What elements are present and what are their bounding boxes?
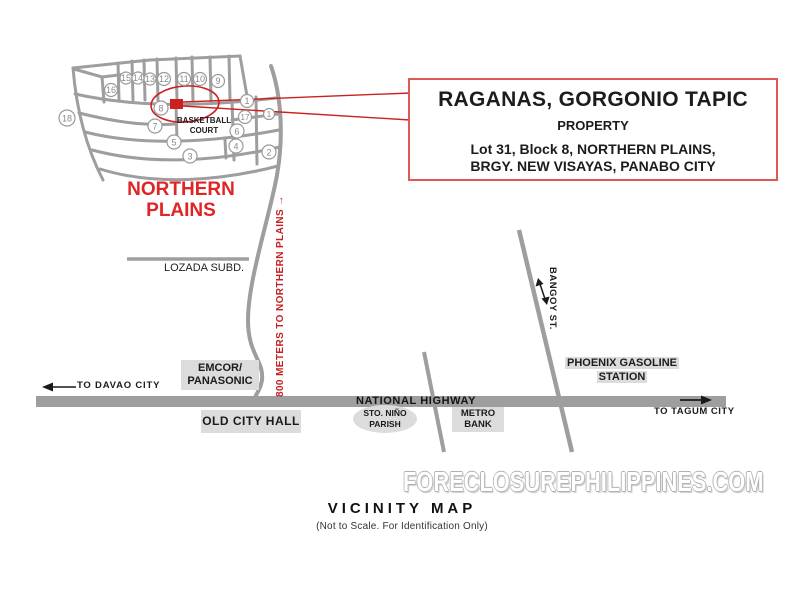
left-arrowhead-icon — [42, 383, 53, 392]
subdivision-name: NORTHERN PLAINS — [116, 180, 246, 221]
lot-circle: 13 — [144, 73, 156, 85]
old-city-hall-label: OLD CITY HALL — [201, 410, 301, 433]
to-davao-city-label: TO DAVAO CITY — [77, 380, 160, 391]
street-row-5 — [100, 166, 278, 180]
lot-circle: 5 — [167, 135, 181, 149]
lot-circle: 17 — [239, 111, 252, 124]
svg-text:1: 1 — [244, 96, 249, 106]
lot-circle: 3 — [183, 149, 197, 163]
svg-text:15: 15 — [121, 73, 131, 83]
lot-circle: 10 — [194, 73, 207, 86]
phoenix-gasoline-label: PHOENIX GASOLINE STATION — [558, 356, 686, 385]
property-label: PROPERTY — [410, 118, 776, 133]
lot-circle: 14 — [132, 72, 144, 84]
lot-circle: 1 — [241, 95, 254, 108]
lot-circle: 12 — [158, 73, 171, 86]
svg-text:16: 16 — [106, 85, 116, 95]
svg-text:4: 4 — [233, 142, 238, 152]
svg-text:17: 17 — [241, 113, 250, 122]
red-square-marker-icon — [170, 99, 183, 109]
metro-bank-label: METRO BANK — [452, 407, 504, 432]
lot-circle: 11 — [178, 73, 191, 86]
property-owner: RAGANAS, GORGONIO TAPIC — [410, 88, 776, 112]
svg-text:3: 3 — [187, 152, 192, 162]
lot-circle: 18 — [59, 110, 75, 126]
bangoy-st-label: BANGOY ST. — [547, 267, 558, 330]
property-address-line1: Lot 31, Block 8, NORTHERN PLAINS, — [410, 141, 776, 158]
lot-circle: 9 — [212, 75, 225, 88]
lozada-subd-label: LOZADA SUBD. — [164, 262, 244, 274]
lot-circle: 2 — [262, 145, 276, 159]
svg-text:12: 12 — [159, 74, 169, 84]
lot-circle: 7 — [148, 119, 162, 133]
basketball-court-label: BASKETBALL COURT — [176, 116, 232, 137]
svg-text:18: 18 — [62, 114, 72, 124]
davao-direction — [42, 383, 76, 392]
svg-text:13: 13 — [145, 74, 155, 84]
svg-text:9: 9 — [215, 76, 220, 86]
to-tagum-city-label: TO TAGUM CITY — [654, 406, 735, 417]
lot-circle: 15 — [120, 72, 132, 84]
svg-text:6: 6 — [234, 127, 239, 137]
svg-text:1: 1 — [267, 110, 272, 119]
property-callout: RAGANAS, GORGONIO TAPIC PROPERTY Lot 31,… — [408, 78, 778, 181]
subdivision-left-boundary — [73, 68, 103, 180]
bangoy-street — [519, 230, 572, 452]
property-address-line2: BRGY. NEW VISAYAS, PANABO CITY — [410, 158, 776, 175]
double-arrow-icon — [540, 284, 545, 299]
emcor-panasonic-label: EMCOR/ PANASONIC — [181, 360, 259, 390]
svg-text:10: 10 — [195, 74, 205, 84]
lot-circle: 8 — [154, 101, 168, 115]
svg-text:11: 11 — [179, 74, 188, 84]
sto-nino-parish-label: STO. NIÑO PARISH — [353, 405, 417, 433]
vicinity-map: 15 14 13 12 11 10 9 16 — [0, 0, 800, 600]
svg-text:7: 7 — [152, 122, 157, 132]
lot-circle: 6 — [230, 124, 244, 138]
distance-note: 800 METERS TO NORTHERN PLAINS → — [275, 195, 286, 397]
svg-text:5: 5 — [171, 138, 176, 148]
svg-text:8: 8 — [158, 104, 163, 114]
svg-text:14: 14 — [133, 73, 143, 83]
watermark: FORECLOSUREPHILIPPINES.COM — [403, 466, 763, 498]
lot-circle: 1 — [264, 109, 275, 120]
lot-circle: 4 — [229, 139, 243, 153]
svg-text:2: 2 — [266, 148, 271, 158]
map-title: VICINITY MAP — [292, 500, 512, 517]
map-subtitle: (Not to Scale. For Identification Only) — [252, 521, 552, 532]
right-cluster-divider-2 — [256, 97, 257, 164]
lot-circle: 16 — [105, 84, 118, 97]
